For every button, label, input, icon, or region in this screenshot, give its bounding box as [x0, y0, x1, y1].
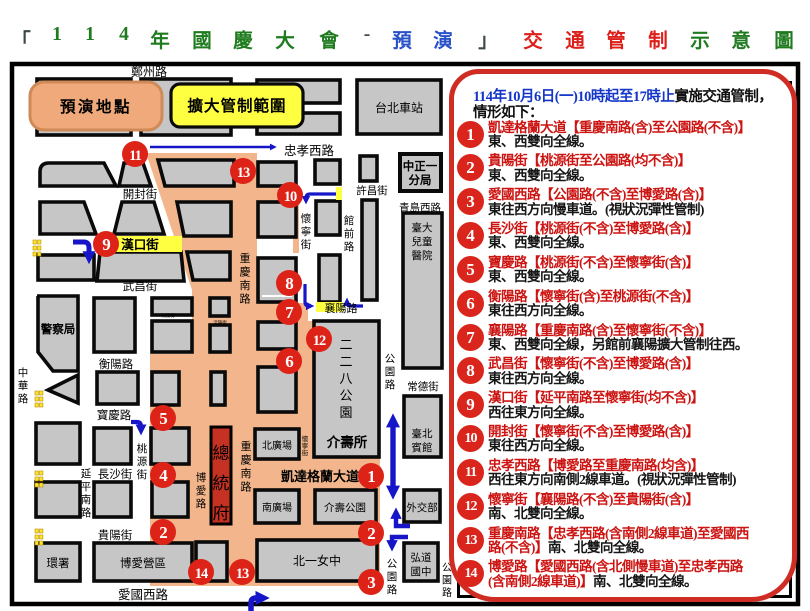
svg-text:博愛營區: 博愛營區	[120, 557, 166, 570]
svg-text:兒童: 兒童	[412, 235, 433, 248]
svg-text:凱達格蘭大道: 凱達格蘭大道	[281, 469, 359, 484]
svg-text:12: 12	[313, 333, 326, 349]
svg-text:1: 1	[367, 467, 375, 486]
svg-text:2: 2	[367, 524, 375, 543]
svg-text:貴陽街: 貴陽街	[98, 528, 133, 542]
svg-text:3: 3	[367, 573, 375, 592]
svg-text:臺大: 臺大	[412, 221, 433, 234]
svg-text:重慶南路: 重慶南路	[241, 439, 252, 494]
svg-text:13: 13	[236, 566, 249, 582]
svg-text:南廣場: 南廣場	[262, 501, 292, 514]
svg-text:漢口街: 漢口街	[121, 237, 159, 252]
svg-text:預演地點: 預演地點	[60, 97, 132, 116]
svg-text:弘道: 弘道	[411, 551, 432, 564]
svg-text:5: 5	[159, 409, 167, 428]
svg-text:武昌街: 武昌街	[123, 279, 158, 293]
svg-text:襄陽路: 襄陽路	[325, 301, 358, 315]
svg-text:桃源街: 桃源街	[137, 442, 148, 481]
svg-text:寶慶路: 寶慶路	[97, 408, 132, 422]
svg-text:警察局: 警察局	[40, 322, 76, 336]
svg-text:許昌街: 許昌街	[356, 184, 388, 197]
svg-text:常德街: 常德街	[407, 380, 439, 393]
svg-text:博愛路: 博愛路	[196, 471, 207, 510]
svg-text:賓館: 賓館	[412, 441, 433, 454]
svg-text:分局: 分局	[409, 173, 432, 187]
svg-text:9: 9	[102, 235, 110, 254]
svg-text:中華路: 中華路	[18, 366, 29, 405]
svg-text:懷寧街: 懷寧街	[301, 213, 312, 251]
svg-text:公園路: 公園路	[385, 353, 396, 391]
svg-text:醫院: 醫院	[412, 249, 433, 262]
svg-text:館前路: 館前路	[344, 214, 355, 253]
svg-text:8: 8	[285, 274, 293, 293]
svg-text:公園路: 公園路	[387, 558, 398, 596]
svg-text:13: 13	[237, 165, 250, 181]
svg-text:擴大管制範圍: 擴大管制範圍	[187, 96, 286, 115]
svg-text:忠孝西路: 忠孝西路	[284, 143, 335, 158]
svg-text:6: 6	[285, 352, 293, 371]
svg-text:鄭州路: 鄭州路	[131, 64, 167, 79]
svg-text:國中: 國中	[411, 565, 432, 578]
svg-text:外交部: 外交部	[406, 501, 438, 514]
svg-text:11: 11	[129, 148, 141, 164]
svg-text:懷寧街: 懷寧街	[302, 434, 309, 457]
svg-text:總統府: 總統府	[213, 444, 230, 523]
svg-text:沅陵街: 沅陵街	[213, 319, 227, 326]
svg-text:青島西路: 青島西路	[399, 201, 441, 214]
svg-text:介壽所: 介壽所	[326, 434, 368, 450]
svg-text:14: 14	[195, 566, 208, 582]
svg-text:長沙街: 長沙街	[98, 467, 133, 481]
svg-text:重慶南路: 重慶南路	[240, 251, 251, 306]
svg-text:台北車站: 台北車站	[375, 100, 423, 115]
svg-text:中正一: 中正一	[403, 159, 438, 173]
svg-text:開封街: 開封街	[123, 187, 158, 201]
svg-text:北一女中: 北一女中	[293, 553, 341, 568]
svg-text:沅陵街: 沅陵街	[161, 312, 175, 319]
svg-text:二二八公園: 二二八公園	[339, 337, 352, 420]
svg-text:愛國西路: 愛國西路	[118, 587, 169, 602]
svg-text:衡陽路: 衡陽路	[99, 357, 134, 371]
svg-text:北廣場: 北廣場	[262, 439, 292, 452]
svg-text:環署: 環署	[47, 557, 70, 570]
svg-text:臺北: 臺北	[412, 427, 433, 440]
svg-text:2: 2	[159, 523, 167, 542]
svg-text:10: 10	[284, 189, 297, 205]
svg-text:介壽公園: 介壽公園	[324, 501, 366, 514]
